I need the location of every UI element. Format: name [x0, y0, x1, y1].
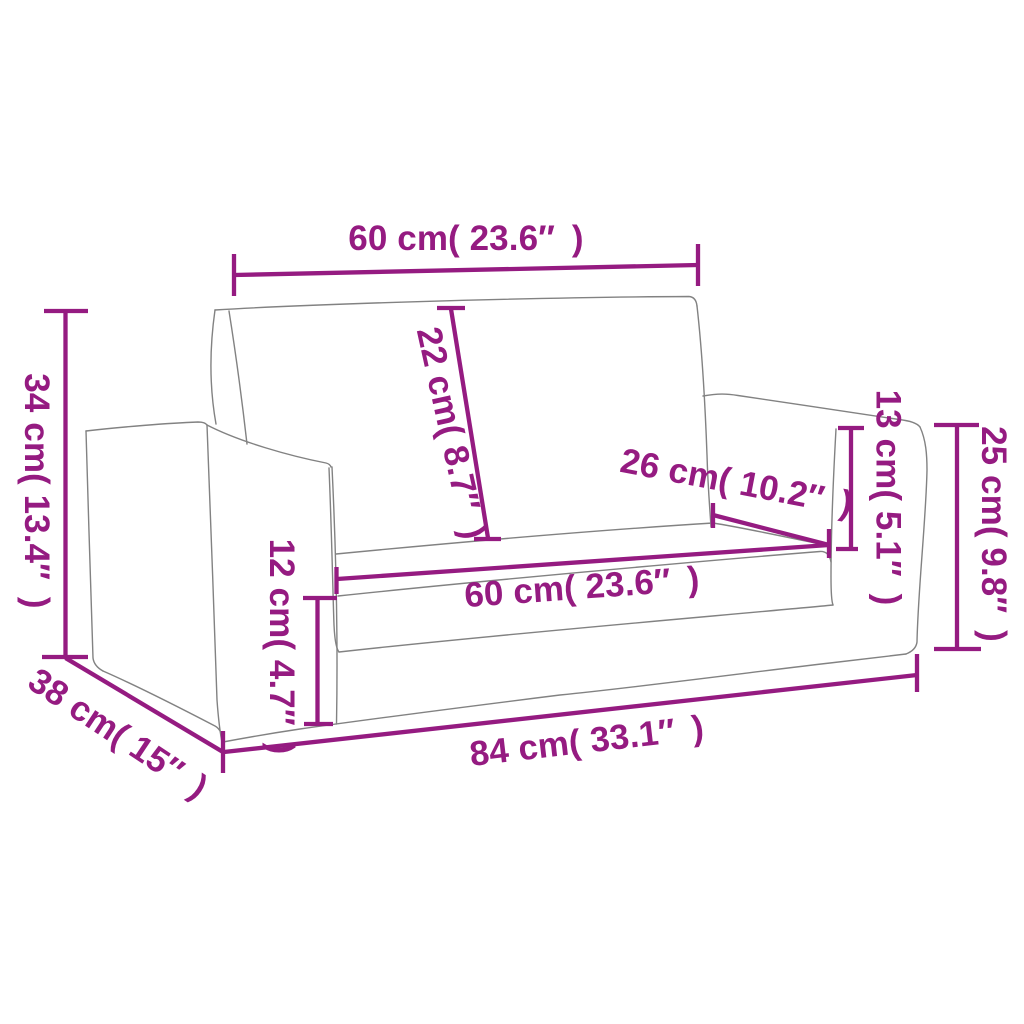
svg-text:25 cm( 9.8″ ): 25 cm( 9.8″ ) — [974, 426, 1013, 642]
svg-text:60 cm( 23.6″ ): 60 cm( 23.6″ ) — [348, 219, 583, 258]
svg-text:34 cm( 13.4″ ): 34 cm( 13.4″ ) — [17, 373, 56, 608]
svg-text:12 cm( 4.7″ ): 12 cm( 4.7″ ) — [262, 539, 301, 755]
svg-text:13 cm( 5.1″ ): 13 cm( 5.1″ ) — [868, 390, 907, 606]
